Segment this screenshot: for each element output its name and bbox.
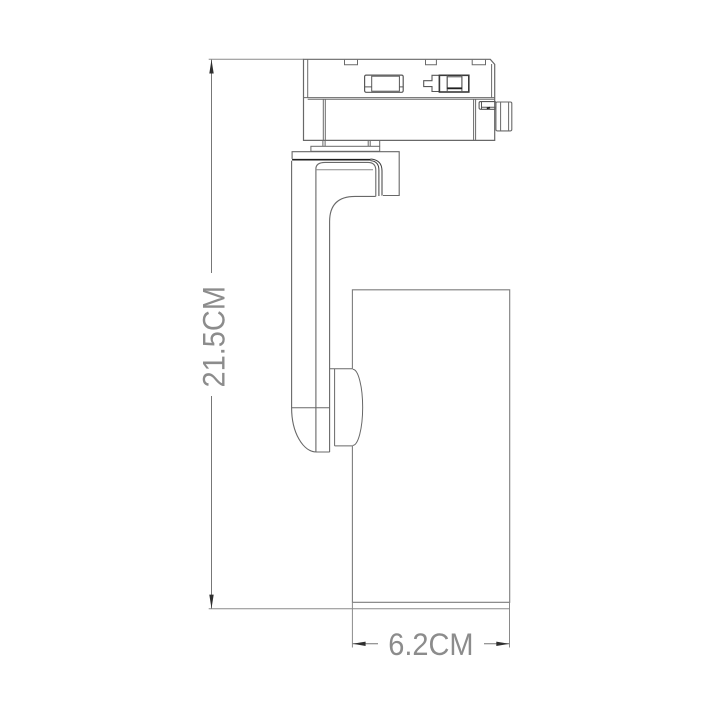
svg-text:6.2CM: 6.2CM (388, 627, 473, 663)
svg-text:21.5CM: 21.5CM (196, 286, 232, 387)
